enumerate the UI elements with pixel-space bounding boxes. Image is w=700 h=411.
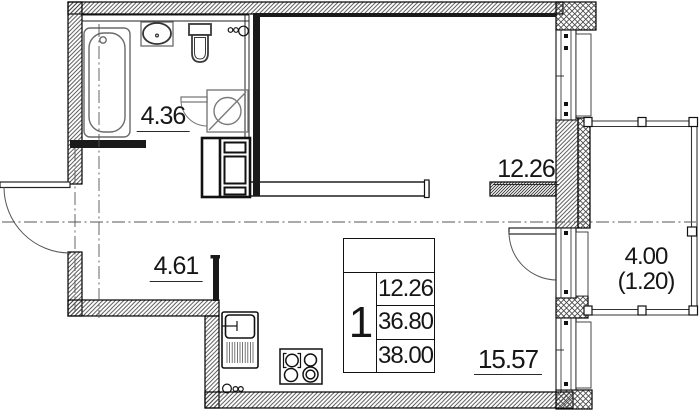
toilet bbox=[189, 24, 211, 62]
area-without-balcony-cell: 36.80 bbox=[377, 306, 434, 339]
partition-end-cap bbox=[425, 180, 430, 198]
bedroom-window bbox=[556, 30, 591, 120]
wash-basin bbox=[141, 22, 173, 46]
kitchen-living-area-label: 15.57 bbox=[474, 346, 542, 375]
info-table-header-cell bbox=[344, 239, 434, 273]
balcony-area-coefficient-label: (1.20) bbox=[614, 270, 679, 296]
entrance-door bbox=[0, 182, 70, 253]
stove bbox=[280, 349, 322, 384]
bathtub bbox=[84, 28, 130, 137]
apartment-info-table: 1 12.26 36.80 38.00 bbox=[343, 238, 435, 373]
bedroom-area-label: 12.26 bbox=[493, 157, 559, 185]
balcony-door bbox=[509, 228, 588, 298]
ventilation-shaft bbox=[202, 138, 250, 197]
interior-partitions bbox=[70, 13, 556, 301]
bathroom-area-label: 4.36 bbox=[137, 104, 190, 132]
total-area-cell: 38.00 bbox=[377, 340, 434, 372]
washing-machine bbox=[207, 90, 248, 132]
rooms-count-cell: 1 bbox=[344, 273, 377, 372]
kitchen-sink bbox=[222, 312, 258, 368]
living-area-cell: 12.26 bbox=[377, 273, 434, 306]
hallway-area-label: 4.61 bbox=[150, 254, 203, 282]
kitchen-window bbox=[556, 318, 591, 390]
floor-plan: 4.36 12.26 4.61 15.57 4.00 (1.20) 1 12.2… bbox=[0, 0, 700, 411]
bedroom-partition-wall bbox=[250, 182, 429, 196]
